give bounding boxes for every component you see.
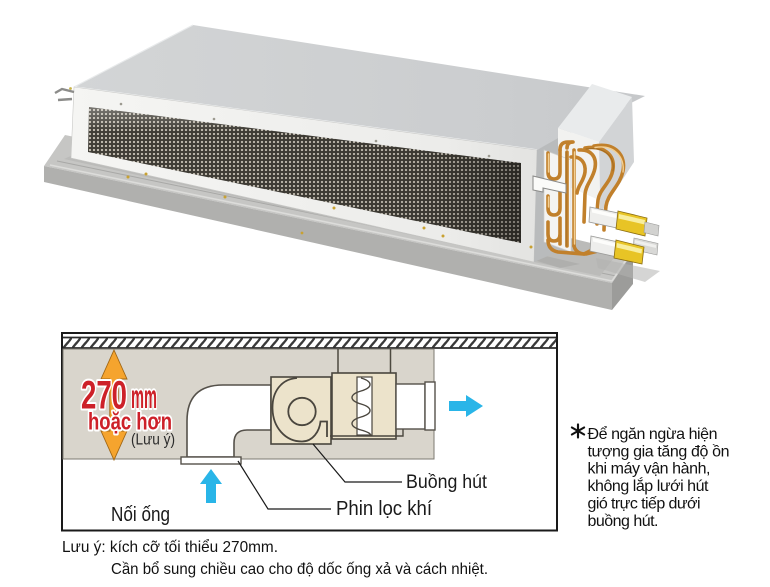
svg-text:Phin lọc khí: Phin lọc khí (336, 498, 432, 520)
svg-text:(Lưu ý): (Lưu ý) (131, 432, 175, 449)
svg-text:gió trực tiếp dưới: gió trực tiếp dưới (588, 495, 701, 512)
svg-text:Để ngăn ngừa hiện: Để ngăn ngừa hiện (588, 425, 718, 443)
svg-text:khi máy vận hành,: khi máy vận hành, (588, 461, 711, 478)
svg-text:Nối ống: Nối ống (111, 504, 170, 526)
svg-text:Buồng hút: Buồng hút (406, 472, 488, 493)
svg-text:buồng hút.: buồng hút. (588, 513, 659, 530)
svg-text:Lưu ý: kích cỡ tối thiểu 270mm: Lưu ý: kích cỡ tối thiểu 270mm. (62, 538, 278, 556)
svg-text:không lắp lưới hút: không lắp lưới hút (588, 476, 710, 495)
svg-text:tượng gia tăng độ ồn: tượng gia tăng độ ồn (588, 443, 730, 460)
svg-text:Cần bổ sung chiều cao cho độ d: Cần bổ sung chiều cao cho độ dốc ống xả … (111, 560, 488, 578)
